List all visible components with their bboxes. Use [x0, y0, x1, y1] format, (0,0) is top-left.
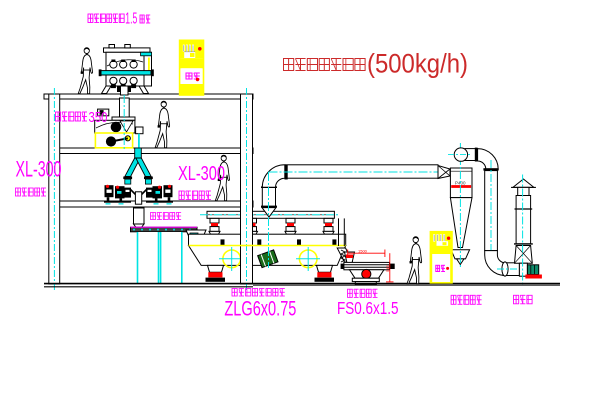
svg-text:ZLG6x0.75: ZLG6x0.75	[224, 298, 296, 321]
svg-text:XL-300: XL-300	[178, 163, 225, 185]
svg-text:(500kg/h): (500kg/h)	[367, 49, 468, 79]
svg-text:XL-300: XL-300	[16, 157, 62, 182]
svg-text:545: 545	[385, 265, 390, 272]
svg-text:FS0.6x1.5: FS0.6x1.5	[337, 298, 399, 318]
svg-text:1500: 1500	[358, 248, 368, 253]
svg-text:350: 350	[89, 109, 108, 126]
svg-text:1.5: 1.5	[125, 11, 137, 28]
